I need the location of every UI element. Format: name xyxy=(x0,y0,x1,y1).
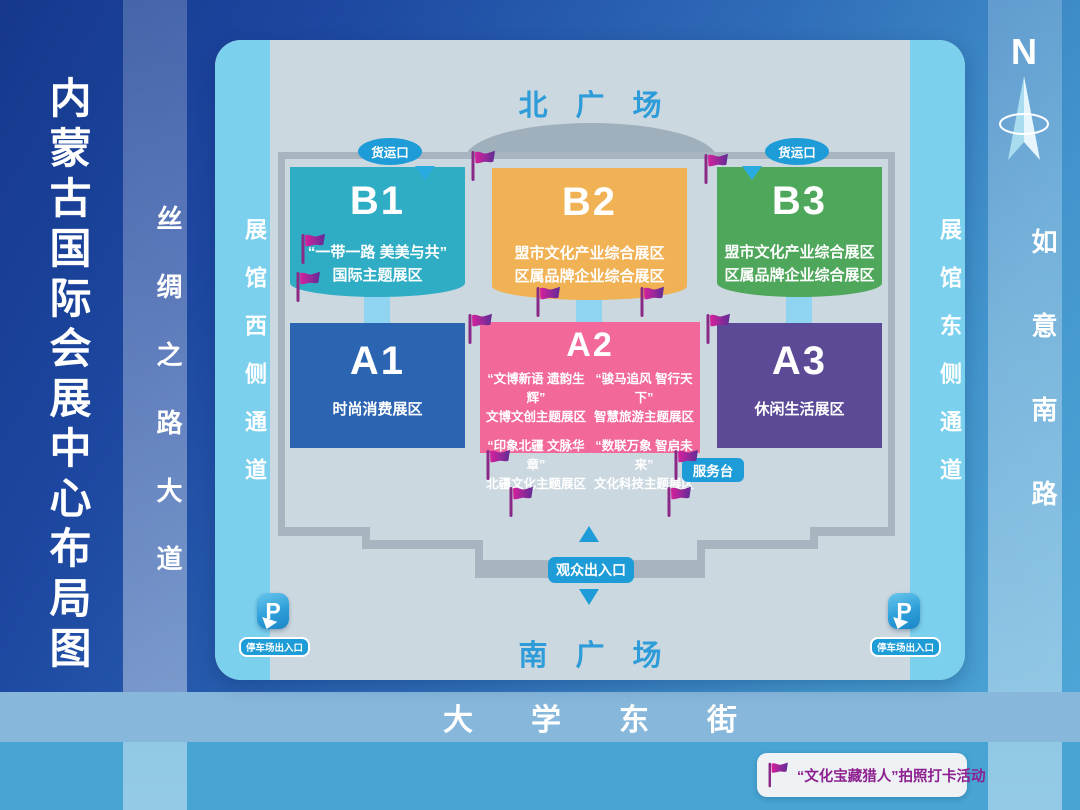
parking-icon-west: P xyxy=(257,593,289,629)
wall-right xyxy=(888,152,895,534)
visitor-entrance-arrow-down-icon xyxy=(579,589,599,605)
map-panel: 展馆西侧通道 展馆东侧通道 北广场 南广场 B1 “一带一路 美美与共” xyxy=(215,40,965,680)
activity-flag-icon xyxy=(485,448,511,482)
hall-a2-q1-theme: “文博新语 遗韵生辉” xyxy=(485,370,587,408)
hall-a2: A2 “文博新语 遗韵生辉” 文博文创主题展区 “骏马追风 智行天下” 智慧旅游… xyxy=(480,322,700,453)
north-plaza-label: 北广场 xyxy=(215,82,965,124)
activity-flag-icon xyxy=(508,485,534,519)
hall-a1-zone: 时尚消费展区 xyxy=(290,398,465,421)
wall-bottom-left-outer xyxy=(278,527,370,536)
activity-flag-icon xyxy=(666,485,692,519)
legend-flag-icon xyxy=(767,761,789,789)
hall-a2-quadrants: “文博新语 遗韵生辉” 文博文创主题展区 “骏马追风 智行天下” 智慧旅游主题展… xyxy=(480,370,700,494)
hall-b3-zone-2: 区属品牌企业综合展区 xyxy=(717,264,882,287)
university-east-street: 大学东街 xyxy=(0,692,1080,742)
freight-gate-arrow-west-icon xyxy=(415,166,435,180)
wall-left xyxy=(278,152,285,534)
wall-bottom-right-outer xyxy=(810,527,895,536)
freight-gate-badge-west: 货运口 xyxy=(358,138,422,165)
legend-box: “文化宝藏猎人”拍照打卡活动 xyxy=(757,753,967,797)
poster-canvas: 大学东街 丝绸之路大道 如意南路 内蒙古国际会展中心布局图 N 展馆西侧通道 展… xyxy=(0,0,1080,810)
university-east-street-label: 大学东街 xyxy=(385,695,795,739)
hall-a3-zone: 休闲生活展区 xyxy=(717,398,882,421)
hall-a2-id: A2 xyxy=(480,326,700,365)
hall-a3-id: A3 xyxy=(717,339,882,384)
activity-flag-icon xyxy=(467,312,493,346)
activity-flag-icon xyxy=(703,152,729,186)
passage-east-label: 展馆东侧通道 xyxy=(910,218,965,506)
activity-flag-icon xyxy=(705,312,731,346)
wall-bottom-left-inner xyxy=(362,540,483,549)
connector-b1-a1 xyxy=(364,293,390,325)
passage-west: 展馆西侧通道 xyxy=(215,40,270,680)
hall-a2-quadrant-2: “骏马追风 智行天下” 智慧旅游主题展区 xyxy=(593,370,695,426)
hall-a2-q1-zone: 文博文创主题展区 xyxy=(485,408,587,427)
legend-text: “文化宝藏猎人”拍照打卡活动 xyxy=(797,765,986,786)
silk-road-label: 丝绸之路大道 xyxy=(123,205,187,613)
hall-b2: B2 盟市文化产业综合展区 区属品牌企业综合展区 xyxy=(492,168,687,300)
passage-west-label: 展馆西侧通道 xyxy=(215,218,270,506)
parking-entrance-label-east: 停车场出入口 xyxy=(870,637,941,657)
hall-a2-q2-zone: 智慧旅游主题展区 xyxy=(593,408,695,427)
south-plaza-label: 南广场 xyxy=(215,632,965,674)
connector-b3-a3 xyxy=(786,293,812,325)
activity-flag-icon xyxy=(673,448,699,482)
visitor-entrance-badge: 观众出入口 xyxy=(548,557,634,583)
compass-north-label: N xyxy=(996,34,1052,70)
freight-gate-badge-east: 货运口 xyxy=(765,138,829,165)
compass-needle-icon xyxy=(998,72,1050,168)
passage-east: 展馆东侧通道 xyxy=(910,40,965,680)
hall-a2-q2-theme: “骏马追风 智行天下” xyxy=(593,370,695,408)
wall-bottom-right-inner xyxy=(697,540,818,549)
activity-flag-icon xyxy=(470,149,496,183)
hall-b3: B3 盟市文化产业综合展区 区属品牌企业综合展区 xyxy=(717,167,882,297)
parking-entrance-label-west: 停车场出入口 xyxy=(239,637,310,657)
hall-a3: A3 休闲生活展区 xyxy=(717,323,882,448)
ruyi-road-label: 如意南路 xyxy=(988,228,1062,564)
compass: N xyxy=(996,34,1052,174)
connector-b2-a2 xyxy=(576,296,602,324)
hall-b3-zone-1: 盟市文化产业综合展区 xyxy=(717,241,882,264)
activity-flag-icon xyxy=(295,270,321,304)
hall-a2-quadrant-1: “文博新语 遗韵生辉” 文博文创主题展区 xyxy=(485,370,587,426)
hall-a1-id: A1 xyxy=(290,339,465,384)
hall-b3-id: B3 xyxy=(717,179,882,224)
hall-b2-id: B2 xyxy=(492,180,687,225)
hall-a1: A1 时尚消费展区 xyxy=(290,323,465,448)
hall-b2-zone-1: 盟市文化产业综合展区 xyxy=(492,242,687,265)
activity-flag-icon xyxy=(639,285,665,319)
page-title: 内蒙古国际会展中心布局图 xyxy=(18,76,98,676)
freight-gate-arrow-east-icon xyxy=(742,166,762,180)
activity-flag-icon xyxy=(535,285,561,319)
visitor-entrance-arrow-up-icon xyxy=(579,526,599,542)
activity-flag-icon xyxy=(300,232,326,266)
parking-icon-east: P xyxy=(888,593,920,629)
hall-b1-id: B1 xyxy=(290,179,465,224)
